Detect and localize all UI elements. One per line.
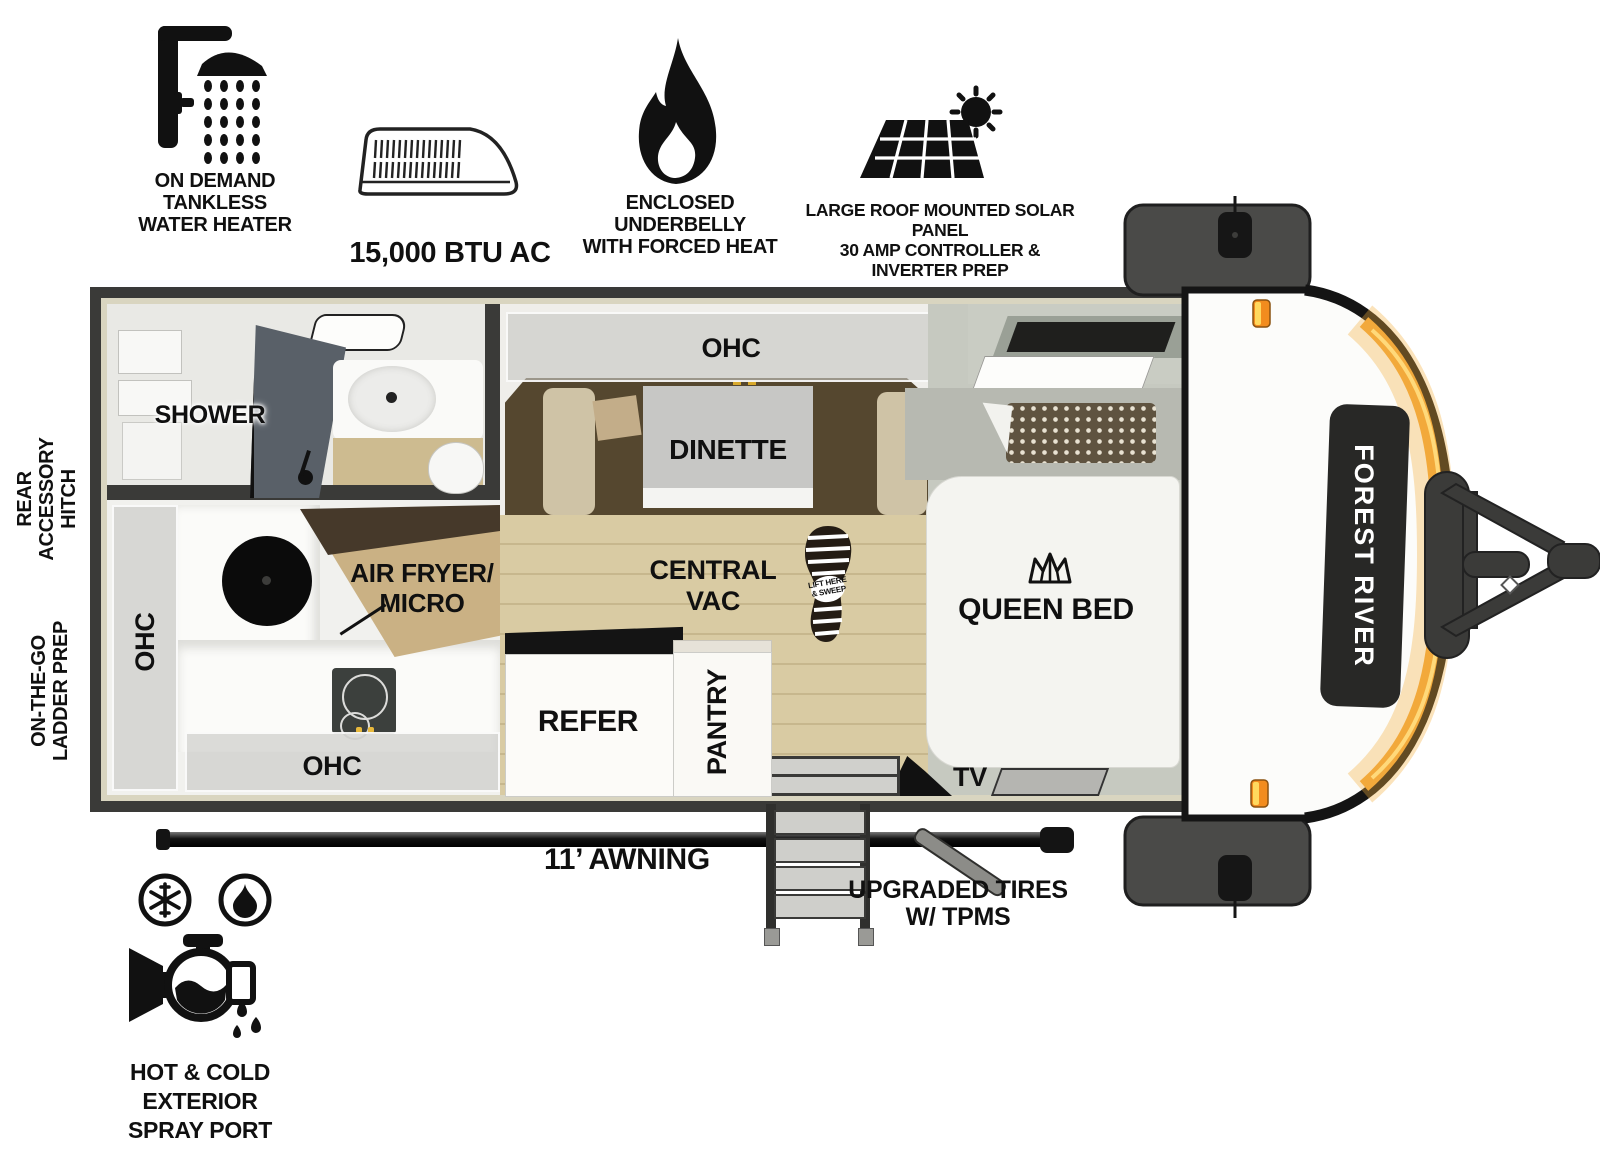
awning-label: 11’ AWNING [527, 843, 727, 876]
dinette-bench-left [543, 388, 595, 515]
feature-label-water-heater: ON DEMAND TANKLESS WATER HEATER [125, 170, 305, 236]
awning-rod-cap-right [1040, 827, 1074, 853]
shower-label: SHOWER [150, 402, 270, 430]
dinette-pillow [592, 395, 641, 441]
feature-label-underbelly: ENCLOSED UNDERBELLY WITH FORCED HEAT [575, 192, 785, 258]
front-cover-top [1125, 205, 1310, 295]
bed-sheet-fold [978, 403, 1013, 454]
queen-bed-label: QUEEN BED [946, 593, 1146, 626]
interior-step-divider [771, 774, 897, 777]
crown-icon [1026, 551, 1074, 587]
flame-icon [622, 36, 734, 186]
tongue-hitch [1425, 472, 1600, 658]
tv-label: TV [944, 763, 996, 793]
dinette-table-edge [643, 488, 813, 508]
marker-light-top [1253, 300, 1270, 327]
tires-label: UPGRADED TIRES W/ TPMS [848, 877, 1068, 931]
feature-label-ac: 15,000 BTU AC [330, 238, 570, 270]
bathroom-shelf [122, 422, 182, 480]
bathroom-shelf [118, 330, 182, 374]
brand-label: FOREST RIVER [1325, 401, 1403, 711]
dinette-ohc-label: OHC [671, 334, 791, 364]
feature-label-solar: LARGE ROOF MOUNTED SOLAR PANEL 30 AMP CO… [805, 200, 1075, 280]
kitchen-ohc-bottom-label: OHC [272, 752, 392, 782]
solar-panel-icon [852, 80, 1008, 184]
ladder-prep-label: ON-THE-GO LADDER PREP [28, 613, 74, 769]
bedroom-window-bottom [991, 768, 1109, 796]
rear-accessory-hitch-label: REAR ACCESSORY HITCH [14, 434, 80, 564]
step-tread [774, 838, 866, 863]
toilet [428, 442, 484, 494]
dinette-label: DINETTE [653, 435, 803, 466]
step-tread [774, 810, 866, 835]
pantry-label: PANTRY [703, 652, 733, 792]
front-cover-bottom [1125, 817, 1310, 905]
kitchen-ohc-left-label: OHC [131, 582, 161, 702]
marker-light-bottom [1251, 780, 1268, 807]
faucet-dot [386, 392, 397, 403]
central-vac-label: CENTRAL VAC [638, 555, 788, 617]
spray-port-label: HOT & COLD EXTERIOR SPRAY PORT [75, 1058, 325, 1145]
air-fryer-label: AIR FRYER/ MICRO [332, 558, 512, 618]
step-foot [764, 928, 780, 946]
floorplan-canvas: ON DEMAND TANKLESS WATER HEATER 15,000 B… [0, 0, 1600, 1151]
spray-port-icon [125, 872, 300, 1052]
awning-rod-cap-left [156, 829, 170, 850]
refer-label: REFER [518, 705, 658, 738]
shower-head-icon [150, 20, 276, 166]
bathroom-wall-right [485, 304, 500, 500]
kitchen-sink-drain [262, 576, 271, 585]
ac-unit-icon [350, 124, 528, 208]
